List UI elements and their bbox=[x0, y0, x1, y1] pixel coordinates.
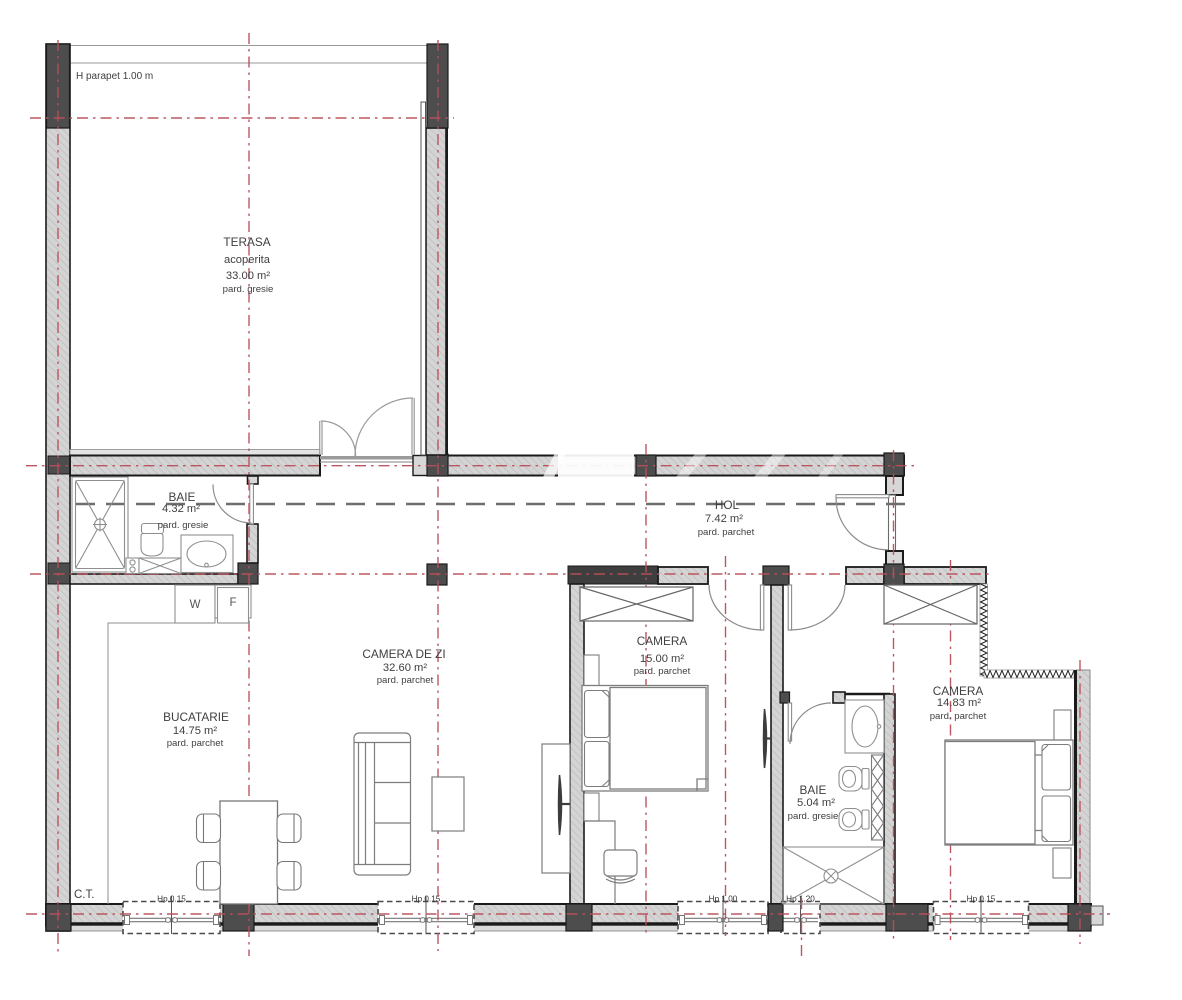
svg-text:7.42 m²: 7.42 m² bbox=[705, 513, 743, 525]
svg-text:acoperita: acoperita bbox=[224, 254, 271, 266]
svg-text:33.00 m²: 33.00 m² bbox=[226, 270, 270, 282]
svg-text:Hp 0.15: Hp 0.15 bbox=[412, 895, 441, 904]
svg-text:15.00 m²: 15.00 m² bbox=[640, 653, 684, 665]
svg-text:BAIE: BAIE bbox=[800, 783, 827, 797]
svg-text:CAMERA DE ZI: CAMERA DE ZI bbox=[362, 647, 445, 661]
svg-text:14.75 m²: 14.75 m² bbox=[173, 725, 217, 737]
svg-text:HOL: HOL bbox=[715, 498, 740, 512]
svg-text:H parapet 1.00 m: H parapet 1.00 m bbox=[76, 71, 153, 82]
svg-text:Hp 1.20: Hp 1.20 bbox=[786, 895, 815, 904]
svg-text:pard. gresie: pard. gresie bbox=[223, 284, 274, 295]
svg-text:5.04 m²: 5.04 m² bbox=[797, 797, 835, 809]
svg-text:CAMERA: CAMERA bbox=[637, 634, 688, 648]
svg-text:CAMERA: CAMERA bbox=[933, 684, 984, 698]
svg-text:Hp 0.15: Hp 0.15 bbox=[967, 895, 996, 904]
svg-text:pard. parchet: pard. parchet bbox=[377, 675, 434, 686]
svg-text:W: W bbox=[190, 599, 201, 611]
svg-text:pard. gresie: pard. gresie bbox=[158, 520, 209, 531]
svg-text:pard. parchet: pard. parchet bbox=[634, 666, 691, 677]
svg-text:4.32 m²: 4.32 m² bbox=[162, 503, 200, 515]
svg-text:BUCATARIE: BUCATARIE bbox=[163, 710, 229, 724]
svg-text:pard. parchet: pard. parchet bbox=[167, 738, 224, 749]
svg-text:BAIE: BAIE bbox=[169, 490, 196, 504]
svg-text:F: F bbox=[229, 597, 236, 609]
svg-text:pard. parchet: pard. parchet bbox=[930, 711, 987, 722]
svg-text:Hp 0.15: Hp 0.15 bbox=[157, 895, 186, 904]
svg-text:pard. gresie: pard. gresie bbox=[788, 811, 839, 822]
svg-text:Hp 1.00: Hp 1.00 bbox=[709, 895, 738, 904]
svg-text:14.83 m²: 14.83 m² bbox=[937, 697, 981, 709]
svg-text:C.T.: C.T. bbox=[74, 889, 94, 901]
svg-text:32.60 m²: 32.60 m² bbox=[383, 662, 427, 674]
svg-text:pard. parchet: pard. parchet bbox=[698, 527, 755, 538]
svg-text:TERASA: TERASA bbox=[223, 235, 270, 249]
